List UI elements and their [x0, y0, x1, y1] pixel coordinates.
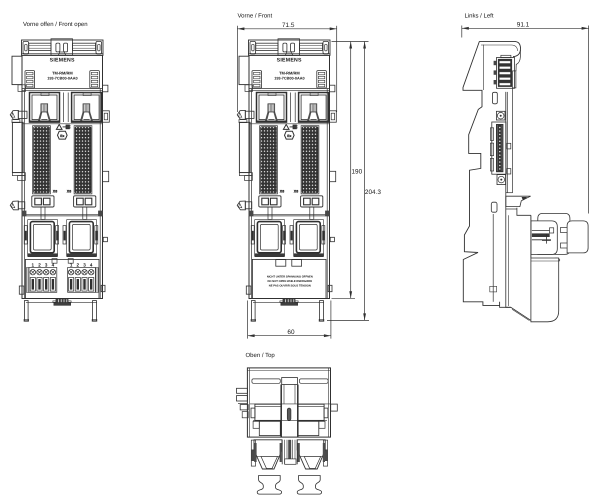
svg-text:2: 2 — [77, 263, 80, 268]
svg-text:Links / Left: Links / Left — [465, 13, 494, 20]
svg-text:2: 2 — [38, 263, 41, 268]
svg-text:NICHT UNTER SPANNUNG ÖFFNEN: NICHT UNTER SPANNUNG ÖFFNEN — [267, 275, 313, 279]
svg-text:204.3: 204.3 — [365, 189, 381, 196]
svg-text:4: 4 — [90, 263, 93, 268]
svg-text:60: 60 — [287, 329, 295, 336]
svg-text:71.5: 71.5 — [282, 22, 295, 29]
svg-text:NE PAS OUVRIR SOUS TENSION: NE PAS OUVRIR SOUS TENSION — [269, 285, 311, 288]
svg-text:3: 3 — [83, 263, 86, 268]
svg-text:4: 4 — [52, 263, 55, 268]
svg-text:1: 1 — [32, 263, 35, 268]
svg-text:Oben / Top: Oben / Top — [246, 352, 276, 359]
svg-text:Vorne offen / Front open: Vorne offen / Front open — [23, 21, 88, 28]
svg-text:91.1: 91.1 — [517, 22, 530, 29]
svg-text:Vorne / Front: Vorne / Front — [238, 13, 273, 20]
svg-text:DO NOT OPEN WHILE ENERGIZED: DO NOT OPEN WHILE ENERGIZED — [267, 280, 312, 283]
svg-text:3: 3 — [45, 263, 48, 268]
svg-text:1: 1 — [70, 263, 73, 268]
svg-text:190: 190 — [352, 169, 363, 176]
